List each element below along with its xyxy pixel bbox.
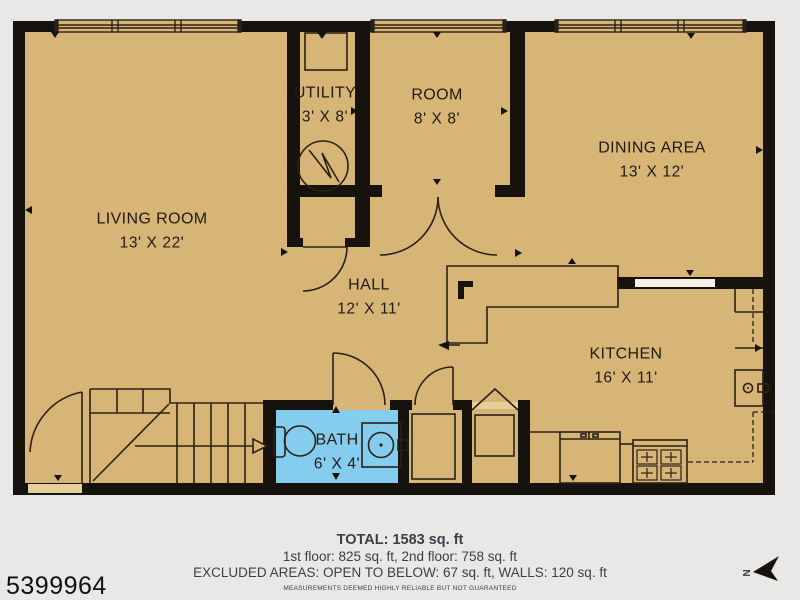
- room-name: BATH: [314, 428, 360, 452]
- listing-id-watermark: 5399964: [6, 572, 107, 600]
- kitchen-passthrough: [635, 279, 715, 287]
- label-dining-area: DINING AREA 13' X 12': [598, 136, 706, 183]
- room-dims: 3' X 8': [294, 105, 356, 128]
- window-dining: [555, 20, 746, 32]
- area-summary: TOTAL: 1583 sq. ft 1st floor: 825 sq. ft…: [0, 532, 800, 592]
- total-area-text: TOTAL: 1583 sq. ft: [0, 532, 800, 548]
- room-name: ROOM: [411, 83, 462, 107]
- wall-closet1-right: [462, 400, 472, 483]
- room-dims: 13' X 12': [598, 160, 706, 183]
- wall-outer-left: [13, 21, 25, 495]
- label-utility: UTILITY 3' X 8': [294, 81, 356, 128]
- window-room: [371, 20, 506, 32]
- window-living: [55, 20, 241, 32]
- label-bath: BATH 6' X 4': [314, 428, 360, 475]
- room-dims: 16' X 11': [589, 366, 662, 389]
- room-name: LIVING ROOM: [96, 207, 207, 231]
- room-name: HALL: [337, 273, 401, 297]
- wall-bath-top-left: [263, 400, 333, 410]
- floors: [13, 21, 775, 495]
- floorplan-page: N LIVING ROOM 13' X 22' UTILITY 3' X 8' …: [0, 0, 800, 600]
- wall-outer-bottom: [13, 483, 775, 495]
- wall-closet2-right: [518, 400, 530, 483]
- excluded-areas-text: EXCLUDED AREAS: OPEN TO BELOW: 67 sq. ft…: [0, 565, 800, 580]
- room-dims: 12' X 11': [337, 297, 401, 320]
- windows: [55, 20, 746, 32]
- room-dims: 8' X 8': [411, 107, 462, 130]
- wall-room-dining: [510, 21, 525, 197]
- wall-utility-room: [355, 32, 370, 197]
- wall-closet-stub-left: [287, 238, 303, 247]
- room-dims: 6' X 4': [314, 452, 360, 475]
- label-room: ROOM 8' X 8': [411, 83, 462, 130]
- floor-areas-text: 1st floor: 825 sq. ft, 2nd floor: 758 sq…: [0, 549, 800, 564]
- room-name: KITCHEN: [589, 342, 662, 366]
- room-name: DINING AREA: [598, 136, 706, 160]
- label-hall: HALL 12' X 11': [337, 273, 401, 320]
- disclaimer-text: MEASUREMENTS DEEMED HIGHLY RELIABLE BUT …: [0, 585, 800, 592]
- room-dims: 13' X 22': [96, 231, 207, 254]
- wall-living-utility: [287, 32, 300, 247]
- label-living-room: LIVING ROOM 13' X 22': [96, 207, 207, 254]
- entry-door-sill: [28, 484, 82, 493]
- wall-closet-stub-right: [345, 238, 370, 247]
- wall-outer-right: [763, 21, 775, 495]
- label-kitchen: KITCHEN 16' X 11': [589, 342, 662, 389]
- wall-room-bottom-left: [355, 185, 382, 197]
- room-name: UTILITY: [294, 81, 356, 105]
